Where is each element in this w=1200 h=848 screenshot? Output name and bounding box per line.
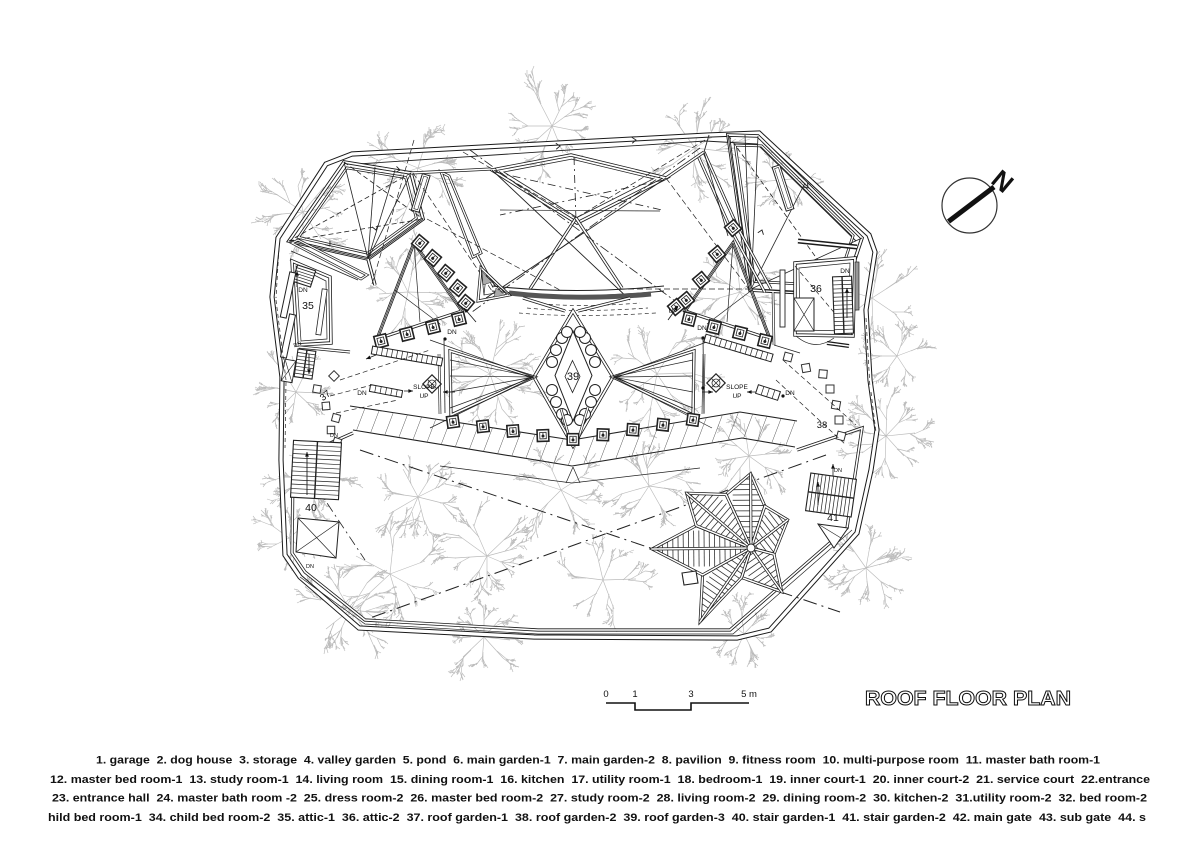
- svg-text:3: 3: [688, 689, 693, 700]
- svg-text:12. master bed room-1 13. stu: 12. master bed room-1 13. study room-1 1…: [50, 774, 1150, 786]
- svg-text:SLOPE: SLOPE: [726, 384, 748, 391]
- svg-text:1: 1: [632, 689, 637, 700]
- svg-text:DN: DN: [840, 268, 850, 275]
- svg-text:UP: UP: [419, 393, 428, 400]
- svg-text:DN: DN: [330, 433, 338, 439]
- svg-text:1. garage 2. dog house 3. st: 1. garage 2. dog house 3. storage 4. val…: [96, 755, 1100, 767]
- svg-text:40: 40: [305, 502, 317, 514]
- svg-text:DN: DN: [306, 564, 314, 570]
- svg-text:SLOPE: SLOPE: [413, 384, 435, 391]
- svg-text:DN: DN: [447, 329, 457, 336]
- svg-text:39: 39: [567, 371, 579, 383]
- svg-text:UP: UP: [732, 393, 741, 400]
- svg-text:0: 0: [603, 689, 608, 700]
- svg-text:DN: DN: [298, 287, 308, 294]
- svg-text:hild bed room-1 34. child bed: hild bed room-1 34. child bed room-2 35.…: [48, 812, 1146, 824]
- svg-text:23. entrance hall 24. master: 23. entrance hall 24. master bath room -…: [52, 793, 1147, 805]
- svg-text:38: 38: [817, 420, 828, 431]
- svg-text:36: 36: [810, 283, 822, 295]
- svg-text:DN: DN: [357, 390, 367, 397]
- svg-text:41: 41: [827, 512, 839, 524]
- svg-text:35: 35: [302, 300, 314, 312]
- svg-text:DN: DN: [834, 468, 842, 474]
- svg-text:5 m: 5 m: [741, 689, 757, 700]
- svg-text:ROOF FLOOR PLAN: ROOF FLOOR PLAN: [865, 687, 1071, 710]
- svg-text:DN: DN: [697, 325, 707, 332]
